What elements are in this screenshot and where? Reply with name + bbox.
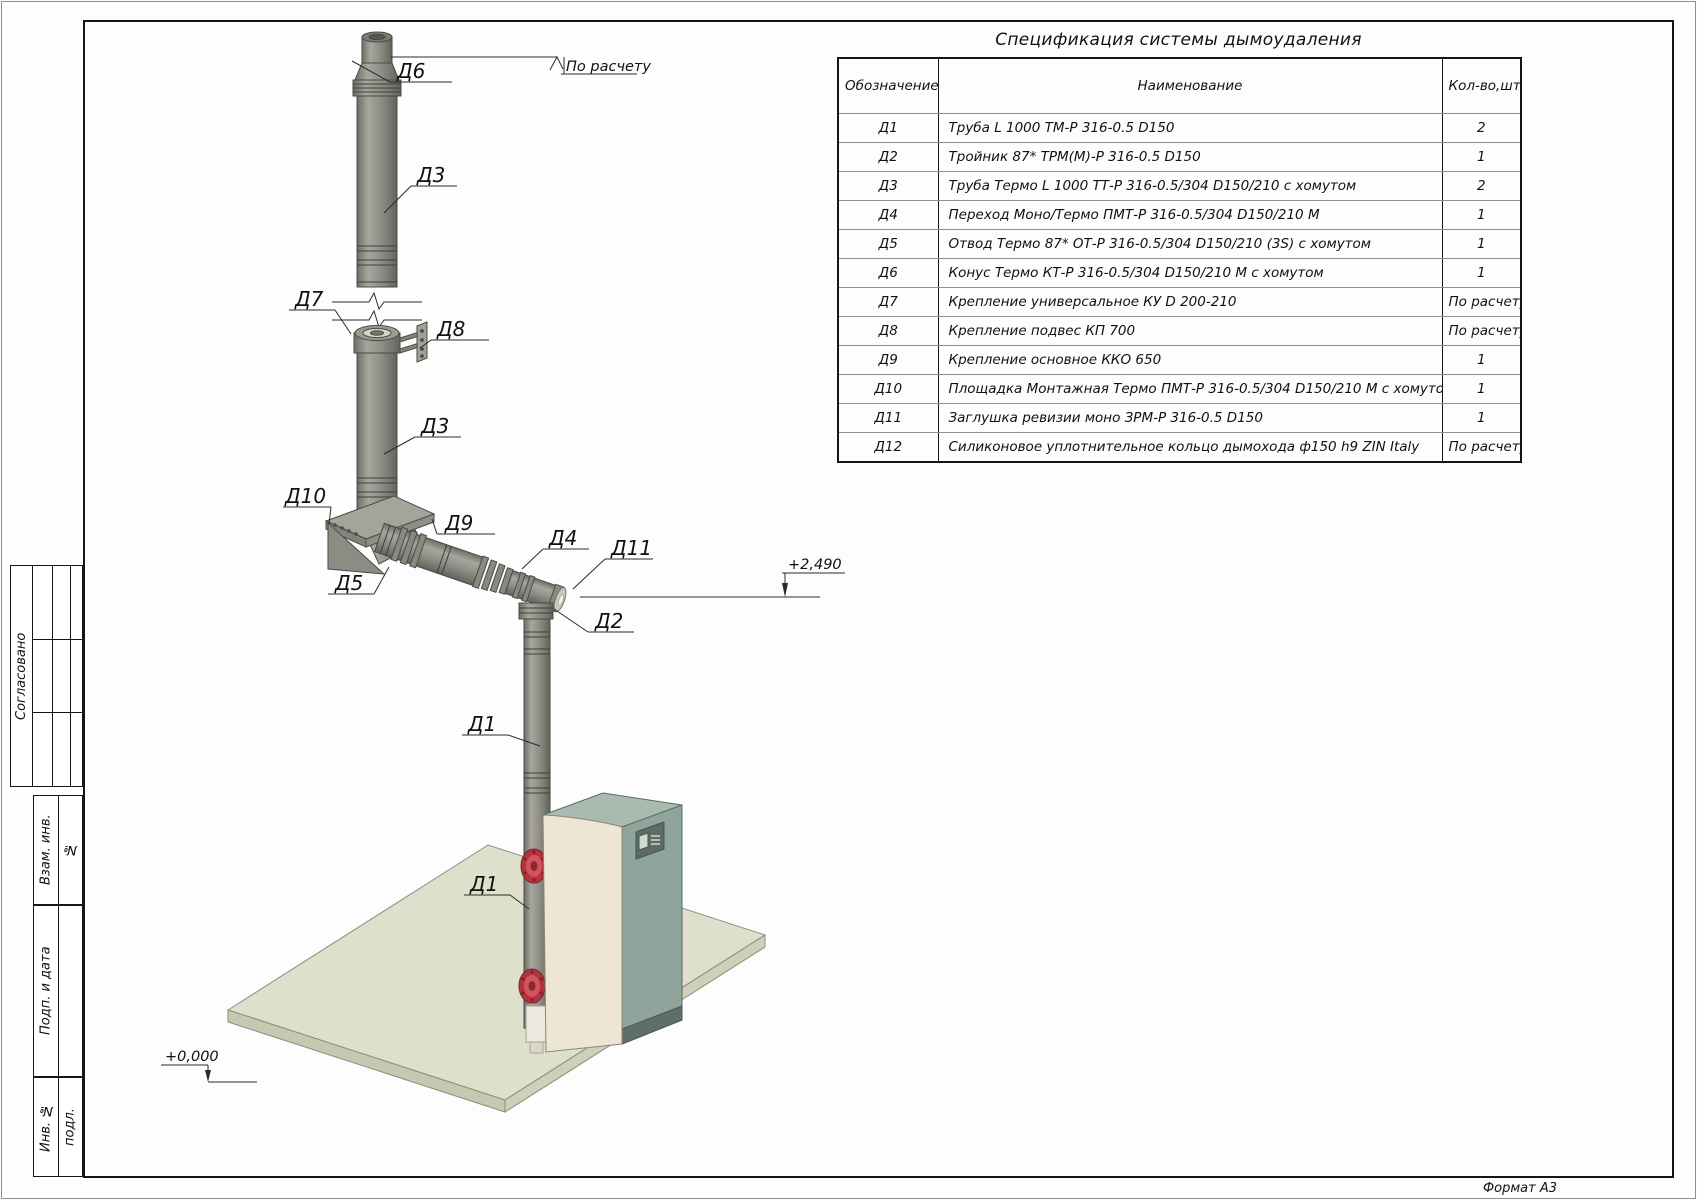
callout-d9: Д9 [432, 511, 495, 535]
cell-qty: 2 [1442, 172, 1521, 201]
cell-code: Д2 [838, 143, 938, 172]
cell-qty: 2 [1442, 114, 1521, 143]
cell-name: Крепление основное ККО 650 [938, 346, 1442, 375]
cell-code: Д8 [838, 317, 938, 346]
cell-qty: 1 [1442, 230, 1521, 259]
titleblock-inv-podl: Инв. № подл. [33, 1077, 83, 1177]
flange-valve-lower [519, 969, 545, 1003]
cell-name: Силиконовое уплотнительное кольцо дымохо… [938, 433, 1442, 462]
cell-qty: 1 [1442, 259, 1521, 288]
cell-name: Тройник 87* ТРМ(М)-Р 316-0.5 D150 [938, 143, 1442, 172]
titleblock-approved: Согласовано [10, 565, 83, 787]
table-row: Д12Силиконовое уплотнительное кольцо дым… [838, 433, 1521, 462]
cell-qty: 1 [1442, 404, 1521, 433]
divider [32, 639, 82, 640]
cell-qty: По расчету [1442, 433, 1521, 462]
callout-d10: Д10 [283, 484, 331, 524]
cell-code: Д6 [838, 259, 938, 288]
cell-code: Д1 [838, 114, 938, 143]
callout-d7-label: Д7 [294, 287, 324, 311]
table-row: Д1Труба L 1000 ТМ-Р 316-0.5 D1502 [838, 114, 1521, 143]
callout-d3-upper-label: Д3 [416, 163, 445, 187]
cell-name: Отвод Термо 87* ОТ-Р 316-0.5/304 D150/21… [938, 230, 1442, 259]
callout-d1-upper-label: Д1 [467, 712, 496, 736]
callout-d11: Д11 [573, 536, 653, 589]
titleblock-podp-data: Подп. и дата [33, 905, 83, 1077]
cone-top-d6 [353, 32, 401, 96]
col-header-qty: Кол-во,шт [1442, 58, 1521, 114]
titleblock-vzam-inv: Взам. инв. № [33, 795, 83, 905]
divider [52, 566, 53, 786]
callout-d9-label: Д9 [444, 511, 473, 535]
divider [32, 566, 33, 786]
drawing-sheet: { "sheet": { "format_label": "Формат А3"… [0, 0, 1697, 1200]
table-row: Д5Отвод Термо 87* ОТ-Р 316-0.5/304 D150/… [838, 230, 1521, 259]
thermo-pipe-lower-d3 [357, 353, 397, 512]
spec-table: Обозначение Наименование Кол-во,шт Д1Тру… [837, 57, 1522, 463]
table-row: Д11Заглушка ревизии моно ЗРМ-Р 316-0.5 D… [838, 404, 1521, 433]
cell-qty: По расчету [1442, 288, 1521, 317]
callout-d7: Д7 [289, 287, 351, 334]
table-header-row: Обозначение Наименование Кол-во,шт [838, 58, 1521, 114]
callout-d8-label: Д8 [436, 317, 465, 341]
table-row: Д10Площадка Монтажная Термо ПМТ-Р 316-0.… [838, 375, 1521, 404]
spec-table-title: Спецификация системы дымоудаления [837, 30, 1520, 50]
cell-code: Д4 [838, 201, 938, 230]
inv-podl-label: подл. [58, 1078, 82, 1176]
cell-qty: 1 [1442, 143, 1521, 172]
elevation-marker-top: +2,490 [580, 557, 845, 597]
divider [70, 566, 71, 786]
cell-name: Конус Термо КТ-Р 316-0.5/304 D150/210 М … [938, 259, 1442, 288]
table-row: Д6Конус Термо КТ-Р 316-0.5/304 D150/210 … [838, 259, 1521, 288]
callout-d8: Д8 [420, 317, 489, 348]
table-row: Д7Крепление универсальное КУ D 200-210По… [838, 288, 1521, 317]
callout-d2: Д2 [554, 609, 634, 633]
elevation-floor-label: +0,000 [165, 1049, 219, 1065]
boiler [543, 793, 682, 1052]
callout-d2-label: Д2 [594, 609, 623, 633]
dimension-top-note: По расчету [391, 57, 651, 75]
callout-d10-label: Д10 [284, 484, 326, 508]
chimney-isometric-drawing: По расчету +2,490 +0,000 Д6 Д3 Д7 Д8 [85, 20, 845, 1170]
podp-label: Подп. и дата [34, 906, 58, 1076]
inv-label: Инв. № [34, 1078, 58, 1176]
cell-name: Труба L 1000 ТМ-Р 316-0.5 D150 [938, 114, 1442, 143]
table-row: Д2Тройник 87* ТРМ(М)-Р 316-0.5 D1501 [838, 143, 1521, 172]
callout-d6-label: Д6 [396, 59, 425, 83]
table-row: Д8Крепление подвес КП 700По расчету [838, 317, 1521, 346]
tee-d2 [519, 603, 553, 619]
cell-name: Крепление подвес КП 700 [938, 317, 1442, 346]
vzam-label: Взам. инв. [34, 796, 58, 904]
elevation-marker-floor: +0,000 [161, 1049, 257, 1082]
cell-name: Переход Моно/Термо ПМТ-Р 316-0.5/304 D15… [938, 201, 1442, 230]
top-note-label: По расчету [566, 59, 651, 75]
cell-qty: 1 [1442, 375, 1521, 404]
table-row: Д3Труба Термо L 1000 ТТ-Р 316-0.5/304 D1… [838, 172, 1521, 201]
cell-code: Д12 [838, 433, 938, 462]
callout-d4: Д4 [522, 526, 589, 569]
cell-name: Заглушка ревизии моно ЗРМ-Р 316-0.5 D150 [938, 404, 1442, 433]
elevation-top-label: +2,490 [788, 557, 842, 573]
cell-qty: 1 [1442, 346, 1521, 375]
cell-code: Д5 [838, 230, 938, 259]
thermo-pipe-upper-d3 [357, 96, 397, 287]
cell-code: Д10 [838, 375, 938, 404]
divider [58, 906, 59, 1076]
cell-name: Труба Термо L 1000 ТТ-Р 316-0.5/304 D150… [938, 172, 1442, 201]
callout-d5-label: Д5 [334, 571, 363, 595]
col-header-code: Обозначение [838, 58, 938, 114]
table-row: Д9Крепление основное ККО 6501 [838, 346, 1521, 375]
cell-qty: 1 [1442, 201, 1521, 230]
col-header-name: Наименование [938, 58, 1442, 114]
cell-code: Д3 [838, 172, 938, 201]
callout-d4-label: Д4 [548, 526, 577, 550]
table-row: Д4Переход Моно/Термо ПМТ-Р 316-0.5/304 D… [838, 201, 1521, 230]
cell-code: Д9 [838, 346, 938, 375]
cell-code: Д7 [838, 288, 938, 317]
callout-d1-lower-label: Д1 [469, 872, 498, 896]
callout-d11-label: Д11 [610, 536, 652, 560]
divider [32, 712, 82, 713]
format-label: Формат А3 [1440, 1181, 1600, 1196]
vzam-no-label: № [58, 796, 82, 904]
cell-qty: По расчету [1442, 317, 1521, 346]
callout-d3-lower-label: Д3 [420, 414, 449, 438]
approved-label: Согласовано [11, 566, 32, 786]
cell-code: Д11 [838, 404, 938, 433]
cell-name: Площадка Монтажная Термо ПМТ-Р 316-0.5/3… [938, 375, 1442, 404]
break-symbol [332, 293, 422, 327]
cell-name: Крепление универсальное КУ D 200-210 [938, 288, 1442, 317]
